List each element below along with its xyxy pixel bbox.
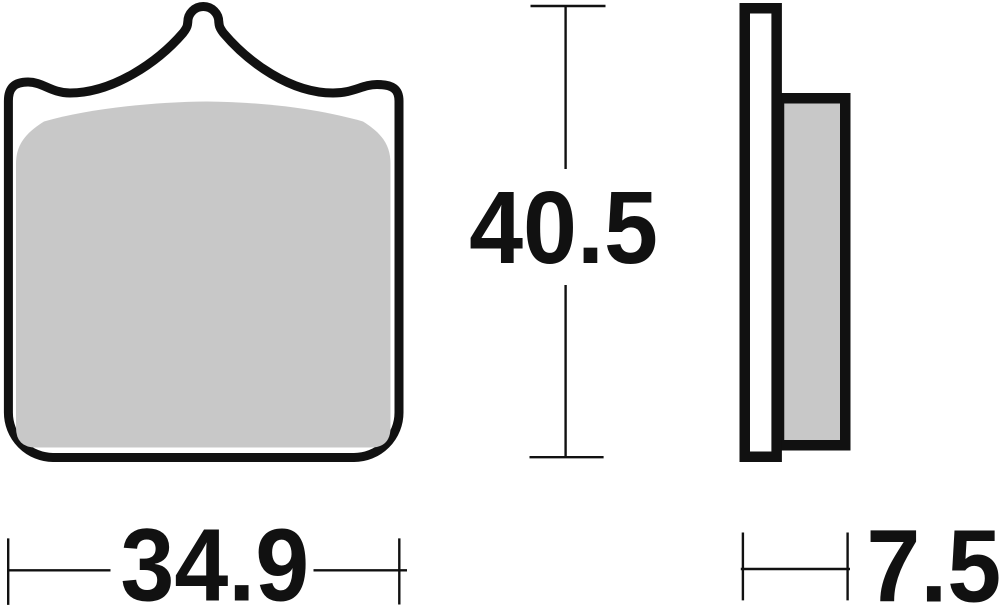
svg-text:7.5: 7.5 bbox=[866, 510, 1000, 610]
svg-text:40.5: 40.5 bbox=[469, 171, 658, 285]
svg-text:34.9: 34.9 bbox=[120, 509, 309, 610]
